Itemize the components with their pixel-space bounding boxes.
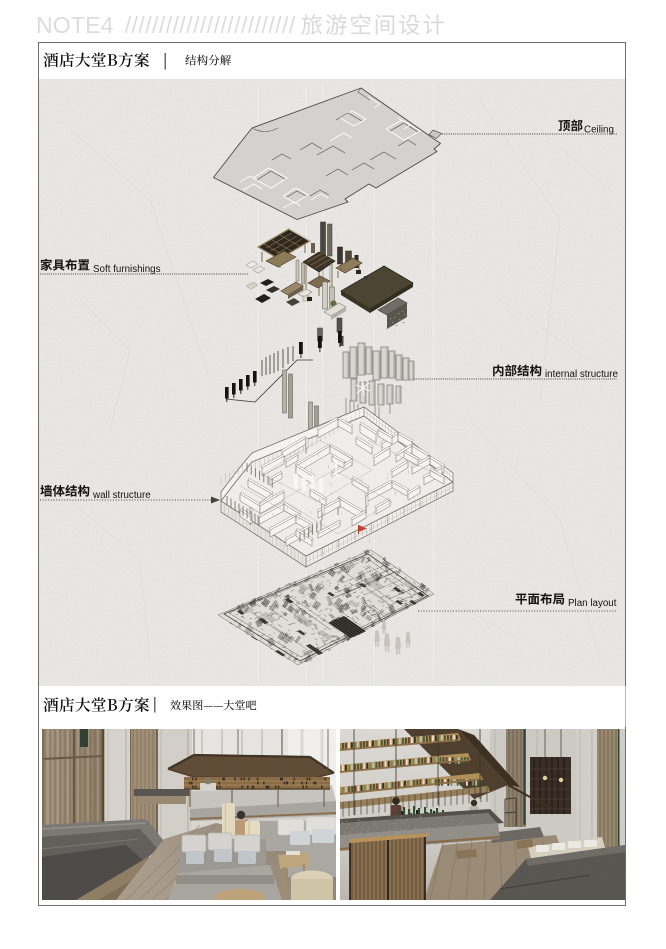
svg-text:NOTE4/////////////////////////: NOTE4///////////////////////// — [36, 12, 296, 38]
svg-text:wall structure: wall structure — [92, 490, 151, 501]
svg-text:1: 1 — [330, 457, 342, 483]
svg-text:Ceiling: Ceiling — [584, 124, 614, 135]
svg-text:internal structure: internal structure — [545, 369, 619, 380]
svg-text:Plan layout: Plan layout — [568, 598, 617, 609]
svg-text:Soft furnishings: Soft furnishings — [93, 264, 161, 275]
